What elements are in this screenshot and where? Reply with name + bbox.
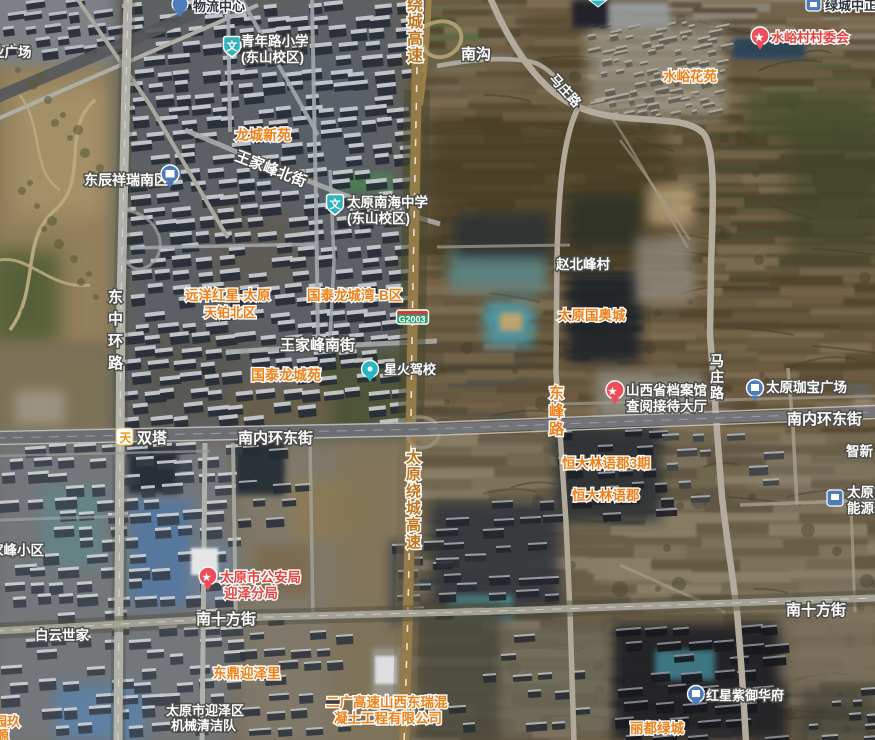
svg-text:东鼎迎泽里: 东鼎迎泽里 bbox=[213, 665, 281, 681]
svg-text:机械清洁队: 机械清洁队 bbox=[171, 718, 237, 733]
svg-text:高: 高 bbox=[407, 29, 423, 48]
svg-text:太原市公安局: 太原市公安局 bbox=[220, 569, 301, 585]
svg-text:能源公: 能源公 bbox=[847, 500, 875, 516]
svg-text:太原市: 太原市 bbox=[847, 484, 875, 500]
svg-text:园玖: 园玖 bbox=[0, 714, 21, 729]
svg-text:山西省档案馆: 山西省档案馆 bbox=[626, 382, 707, 398]
svg-text:赵北峰村: 赵北峰村 bbox=[555, 256, 610, 272]
svg-text:文: 文 bbox=[227, 39, 239, 53]
svg-text:路: 路 bbox=[549, 420, 565, 438]
svg-text:青年路小学: 青年路小学 bbox=[241, 33, 309, 49]
svg-text:绕: 绕 bbox=[406, 482, 421, 500]
svg-text:城: 城 bbox=[407, 13, 423, 31]
svg-text:远洋红星-太原: 远洋红星-太原 bbox=[185, 287, 271, 303]
svg-text:太原市迎泽区: 太原市迎泽区 bbox=[165, 703, 244, 718]
svg-text:★: ★ bbox=[202, 573, 211, 584]
svg-text:G2003: G2003 bbox=[399, 315, 426, 325]
svg-text:中: 中 bbox=[108, 310, 123, 328]
svg-text:速: 速 bbox=[407, 47, 423, 65]
svg-text:太原珈宝广场: 太原珈宝广场 bbox=[766, 379, 847, 395]
svg-text:★: ★ bbox=[608, 387, 617, 398]
svg-text:(东山校区): (东山校区) bbox=[241, 49, 304, 65]
svg-text:恒大林语郡3期: 恒大林语郡3期 bbox=[562, 455, 651, 471]
svg-text:南内环东街: 南内环东街 bbox=[238, 429, 313, 447]
svg-text:路: 路 bbox=[108, 354, 124, 372]
svg-text:★: ★ bbox=[754, 32, 764, 44]
svg-text:恒大林语郡: 恒大林语郡 bbox=[572, 487, 640, 503]
svg-text:南十方街: 南十方街 bbox=[786, 601, 846, 619]
svg-text:文: 文 bbox=[330, 197, 342, 211]
svg-text:绿城中正: 绿城中正 bbox=[825, 0, 875, 13]
svg-text:速: 速 bbox=[406, 533, 421, 551]
svg-text:查阅接待大厅: 查阅接待大厅 bbox=[626, 398, 707, 414]
svg-text:南十方街: 南十方街 bbox=[196, 610, 256, 628]
svg-text:城: 城 bbox=[406, 499, 421, 517]
svg-text:智新: 智新 bbox=[846, 443, 874, 459]
svg-text:天铂北区: 天铂北区 bbox=[204, 305, 256, 320]
svg-text:(东山校区): (东山校区) bbox=[347, 210, 410, 226]
svg-text:王家峰南街: 王家峰南街 bbox=[280, 336, 355, 354]
svg-text:家峰小区: 家峰小区 bbox=[0, 542, 44, 558]
svg-text:龙城新苑: 龙城新苑 bbox=[234, 127, 291, 143]
svg-text:源: 源 bbox=[0, 728, 9, 740]
svg-text:红星紫御华府: 红星紫御华府 bbox=[706, 688, 784, 703]
svg-text:二广高速山西东瑞混: 二广高速山西东瑞混 bbox=[326, 694, 448, 710]
svg-text:水峪村村委会: 水峪村村委会 bbox=[771, 30, 850, 45]
svg-text:环: 环 bbox=[108, 333, 123, 350]
svg-text:双塔: 双塔 bbox=[137, 429, 168, 447]
svg-text:绕: 绕 bbox=[407, 0, 423, 14]
svg-text:物流中心: 物流中心 bbox=[193, 0, 245, 14]
svg-text:东: 东 bbox=[549, 384, 564, 402]
svg-text:丽都绿城: 丽都绿城 bbox=[630, 720, 684, 736]
svg-text:路: 路 bbox=[710, 385, 725, 401]
svg-text:原: 原 bbox=[406, 466, 421, 483]
svg-text:国泰龙城湾-B区: 国泰龙城湾-B区 bbox=[307, 287, 403, 303]
svg-text:峰: 峰 bbox=[549, 402, 565, 420]
svg-text:南内环东街: 南内环东街 bbox=[787, 410, 862, 428]
svg-text:东: 东 bbox=[108, 288, 123, 306]
svg-text:东辰祥瑞南区: 东辰祥瑞南区 bbox=[84, 172, 168, 188]
svg-text:南沟: 南沟 bbox=[461, 45, 491, 63]
svg-text:迎泽分局: 迎泽分局 bbox=[224, 585, 278, 601]
svg-text:星火驾校: 星火驾校 bbox=[384, 362, 437, 377]
svg-text:白云世家: 白云世家 bbox=[35, 627, 89, 643]
svg-text:国泰龙城苑: 国泰龙城苑 bbox=[251, 367, 321, 383]
svg-text:凝土工程有限公司: 凝土工程有限公司 bbox=[334, 710, 442, 726]
svg-text:业广场: 业广场 bbox=[0, 44, 32, 60]
svg-text:水峪花苑: 水峪花苑 bbox=[663, 68, 717, 84]
svg-text:马: 马 bbox=[710, 353, 724, 369]
svg-text:天: 天 bbox=[120, 431, 133, 445]
svg-text:高: 高 bbox=[406, 516, 421, 534]
svg-text:太原国奥城: 太原国奥城 bbox=[558, 307, 626, 323]
svg-text:太原南海中学: 太原南海中学 bbox=[347, 194, 428, 210]
svg-text:庄: 庄 bbox=[710, 369, 724, 385]
svg-text:太: 太 bbox=[406, 448, 422, 466]
